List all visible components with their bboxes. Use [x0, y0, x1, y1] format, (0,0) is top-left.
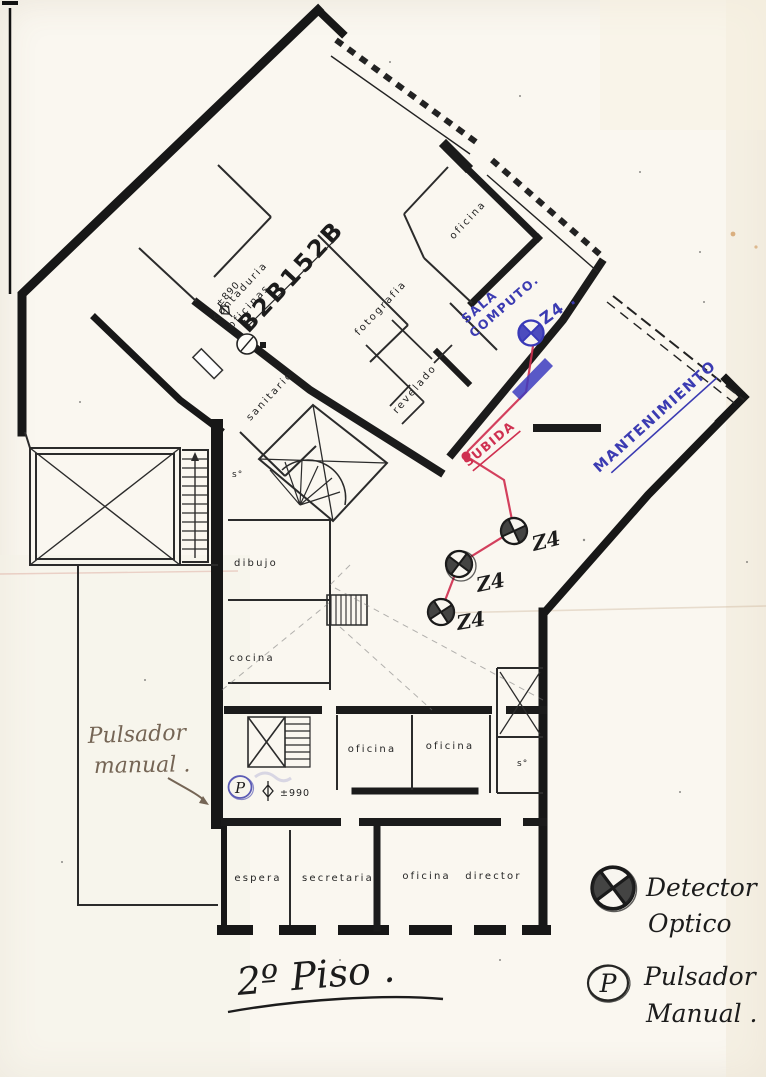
zone-label-1: Z4: [528, 526, 562, 556]
zone-label-2: Z4: [473, 567, 507, 597]
room-label-servicio-2: s°: [517, 759, 528, 769]
floor-plan-drawing: contaduria oficinas ±890 B2B152B oficina…: [0, 0, 766, 1077]
mantenimiento-label: MANTENIMIENTO: [591, 358, 720, 476]
room-label-servicio-1: s°: [232, 470, 243, 480]
room-label-espera: espera: [234, 873, 281, 884]
room-label-oficina-top: oficina: [448, 199, 489, 242]
blue-annotations: SALA COMPUTO. Z4 . MANTENIMIENTO P: [227, 260, 723, 802]
zone-label-3: Z4: [454, 606, 487, 635]
scanned-page: contaduria oficinas ±890 B2B152B oficina…: [0, 0, 766, 1077]
subida-label: SUBIDA: [460, 418, 517, 470]
room-label-oficina-director: oficina director: [402, 871, 521, 882]
room-label-oficina-2: oficina: [426, 741, 475, 752]
room-label-dibujo: dibujo: [234, 558, 278, 569]
legend-pulsador-line2: Manual .: [645, 999, 758, 1028]
legend-detector-line2: Optico: [648, 909, 732, 938]
pulsador-symbol-plan: P: [234, 779, 246, 797]
door-and-grid-marker: [193, 334, 266, 379]
pulsador-note-line1: Pulsador: [86, 721, 188, 750]
legend-pulsador-symbol: P: [599, 969, 618, 998]
legend-pulsador-icon: P: [586, 963, 633, 1004]
legend-detector-line1: Detector: [645, 873, 759, 902]
legend-pulsador-line1: Pulsador: [643, 962, 758, 991]
room-label-cocina: cocina: [229, 653, 275, 664]
room-label-revelado: revelado: [391, 363, 439, 416]
room-label-oficina-1: oficina: [348, 744, 397, 755]
pulsador-note-line2: manual .: [94, 752, 191, 779]
floor-title-text: 2º Piso .: [234, 946, 397, 1004]
room-label-sanitario: sanitario: [245, 369, 296, 423]
floor-title: 2º Piso .: [228, 946, 443, 1012]
room-label-secretaria: secretaria: [302, 873, 374, 884]
elevation-marker-bottom: ±990: [280, 788, 310, 799]
